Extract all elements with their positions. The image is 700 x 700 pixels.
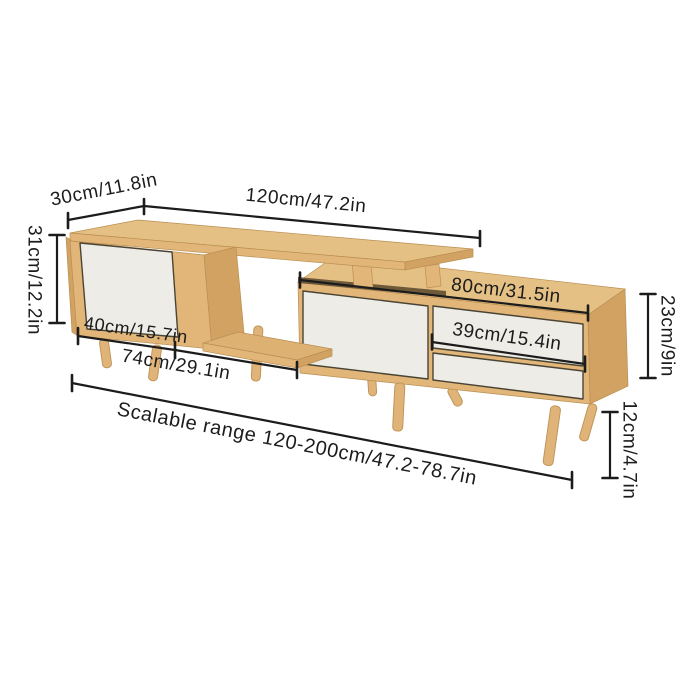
dim-label-left-height: 31cm/12.2in	[24, 225, 45, 335]
tv-stand-dimension-drawing: 30cm/11.8in 120cm/47.2in 31cm/12.2in 40c…	[0, 0, 700, 700]
right-cabinet-left-drawer	[303, 291, 428, 379]
right-unit-front-left-leg	[392, 383, 404, 431]
dim-label-right-height: 23cm/9in	[657, 295, 678, 377]
product-dimension-diagram: 30cm/11.8in 120cm/47.2in 31cm/12.2in 40c…	[0, 0, 700, 700]
dim-label-leg-height: 12cm/4.7in	[619, 401, 640, 500]
board-end-support-block	[425, 264, 441, 288]
